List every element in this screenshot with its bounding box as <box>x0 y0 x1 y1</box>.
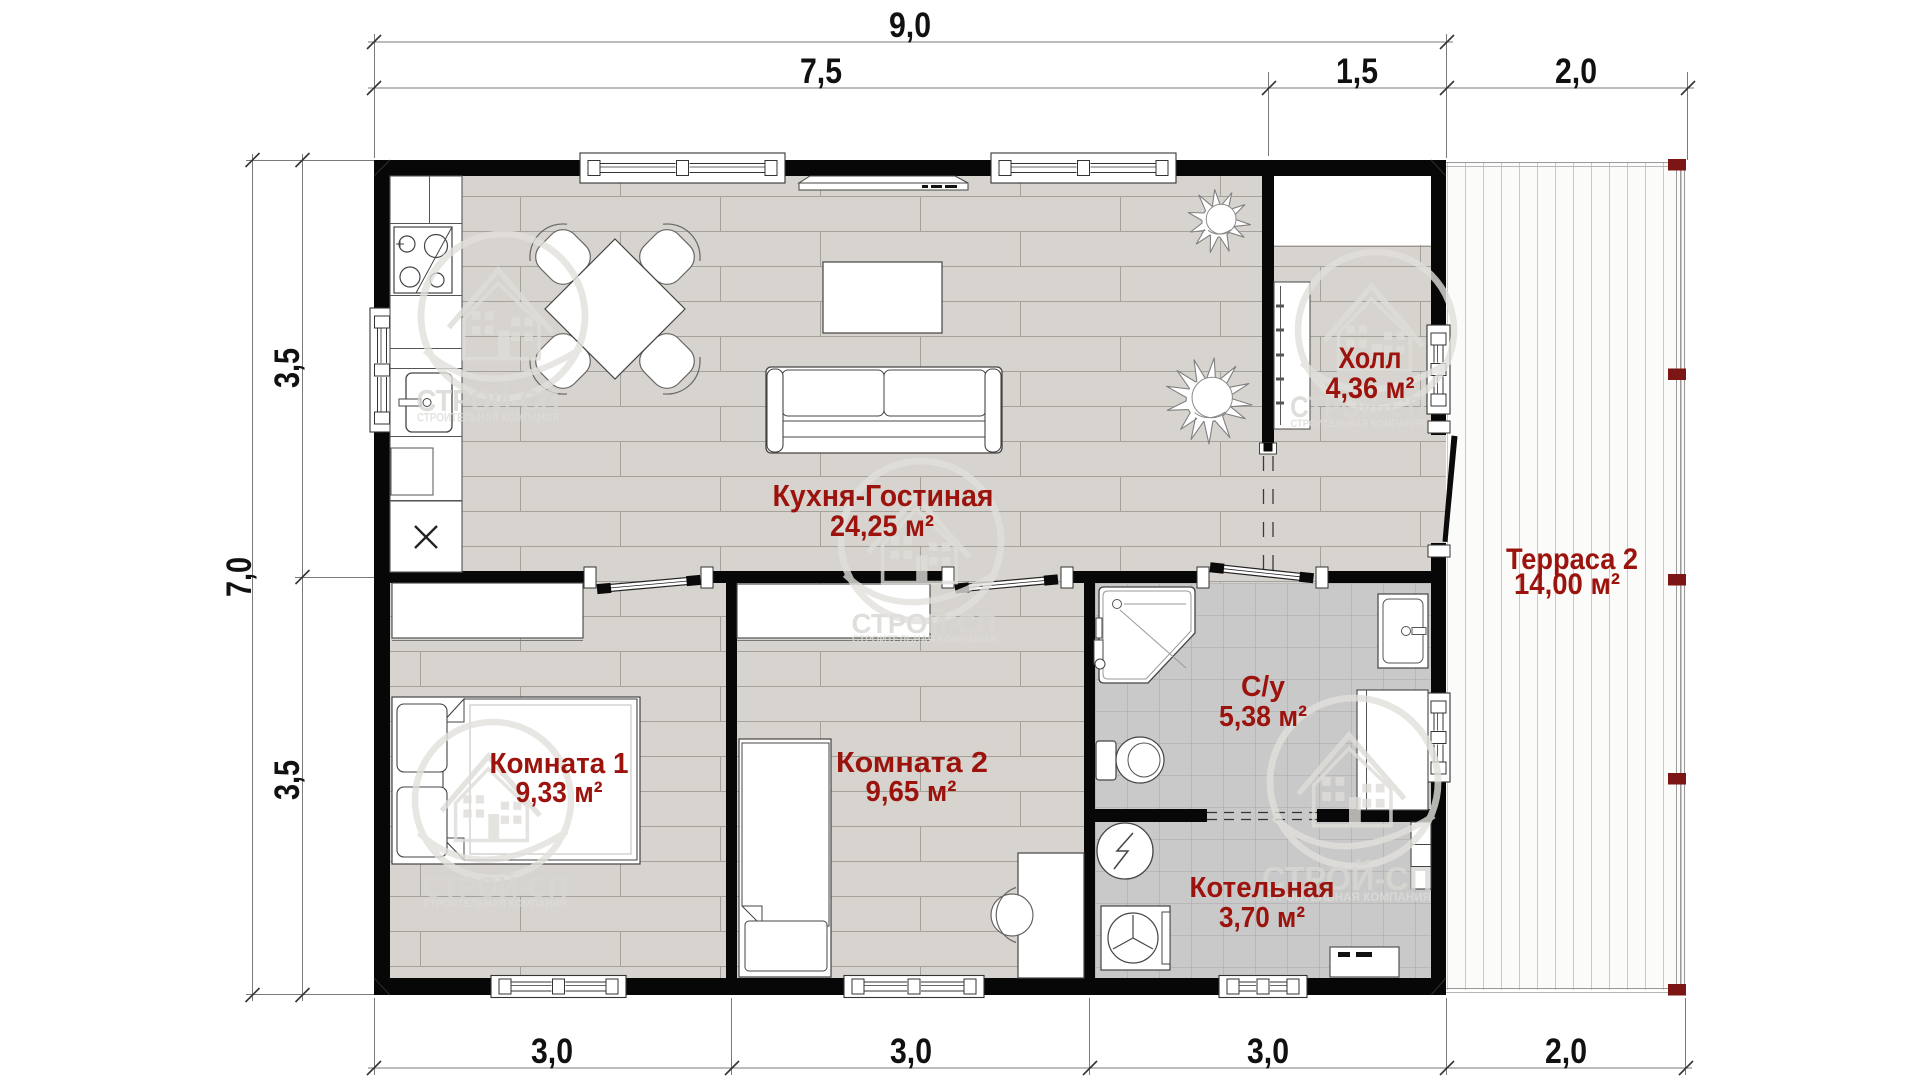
svg-text:3,0: 3,0 <box>531 1032 573 1071</box>
svg-text:2,0: 2,0 <box>1555 52 1597 91</box>
svg-text:9,33 м²: 9,33 м² <box>516 777 603 809</box>
svg-text:5,38 м²: 5,38 м² <box>1219 701 1307 733</box>
svg-text:Комната 2: Комната 2 <box>836 747 988 779</box>
svg-text:СТРОИТЕЛЬНАЯ КОМПАНИЯ: СТРОИТЕЛЬНАЯ КОМПАНИЯ <box>1291 418 1426 430</box>
svg-text:Холл: Холл <box>1339 342 1402 375</box>
svg-text:СТРОИТЕЛЬНАЯ КОМПАНИЯ: СТРОИТЕЛЬНАЯ КОМПАНИЯ <box>417 413 559 425</box>
svg-text:3,0: 3,0 <box>1247 1032 1289 1071</box>
svg-text:24,25 м²: 24,25 м² <box>830 510 934 543</box>
svg-text:Комната 1: Комната 1 <box>490 748 629 780</box>
svg-text:С/у: С/у <box>1241 671 1285 703</box>
svg-text:СТРОИТЕЛЬНАЯ КОМПАНИЯ: СТРОИТЕЛЬНАЯ КОМПАНИЯ <box>423 898 567 910</box>
svg-text:Котельная: Котельная <box>1190 872 1335 904</box>
svg-text:Кухня-Гостиная: Кухня-Гостиная <box>773 478 994 513</box>
svg-text:9,0: 9,0 <box>889 6 931 45</box>
svg-text:3,70 м²: 3,70 м² <box>1219 902 1305 934</box>
svg-text:1,5: 1,5 <box>1336 52 1378 91</box>
svg-text:3,5: 3,5 <box>268 348 307 388</box>
svg-text:3,0: 3,0 <box>890 1032 932 1071</box>
svg-text:14,00 м²: 14,00 м² <box>1514 568 1620 601</box>
svg-text:СТРОИТЕЛЬНАЯ КОМПАНИЯ: СТРОИТЕЛЬНАЯ КОМПАНИЯ <box>852 635 996 646</box>
svg-text:3,5: 3,5 <box>268 760 307 800</box>
svg-text:2,0: 2,0 <box>1545 1032 1587 1071</box>
svg-text:9,65 м²: 9,65 м² <box>866 776 957 808</box>
svg-text:4,36 м²: 4,36 м² <box>1326 372 1415 405</box>
svg-text:7,5: 7,5 <box>800 52 842 91</box>
svg-text:7,0: 7,0 <box>220 557 259 597</box>
